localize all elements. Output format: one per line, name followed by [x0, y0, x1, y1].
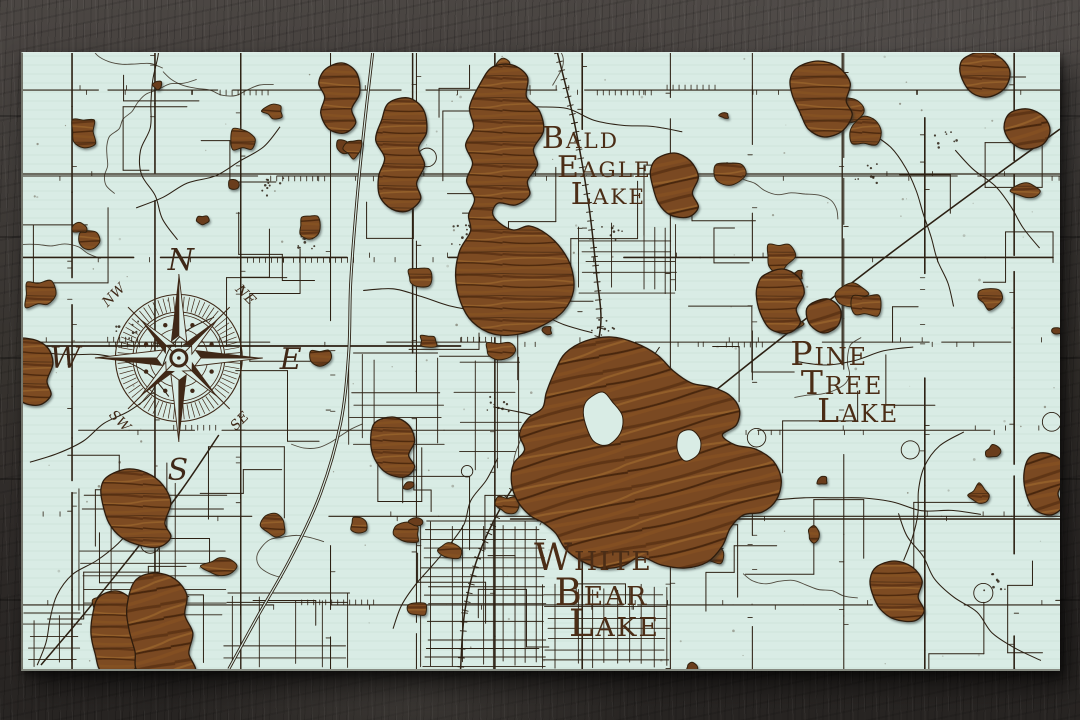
pond-shape: [152, 81, 161, 90]
compass-w-label: W: [50, 341, 83, 376]
framed-wood-map-photo: N E S W NE NW SE SW BALD EAGLE LAKE PINE…: [0, 0, 1080, 720]
compass-sw-label: SW: [106, 407, 135, 436]
pond-shape: [817, 476, 827, 484]
north-of-wbl-lake-shape: [650, 153, 698, 218]
pond-shape: [542, 327, 552, 335]
compass-e-label: E: [279, 342, 302, 377]
pond-shape: [808, 525, 819, 543]
pond-shape: [687, 662, 698, 669]
compass-n-label: N: [167, 243, 196, 278]
compass-nw-label: NW: [98, 280, 129, 311]
pond-shape: [200, 558, 237, 576]
pond-shape: [978, 289, 1003, 311]
pond-shape: [231, 128, 256, 150]
pond-shape: [260, 513, 285, 537]
pond-shape: [300, 216, 320, 240]
pond-shape: [408, 268, 432, 287]
pond-shape: [229, 179, 240, 189]
pond-shape: [968, 483, 990, 504]
pond-shape: [261, 104, 282, 119]
bottom-left-lake2-shape: [127, 573, 196, 669]
pond-shape: [486, 342, 516, 360]
pond-shape: [351, 517, 367, 533]
white-bear-lake-shape: [511, 337, 781, 568]
pond-shape: [343, 140, 362, 159]
pond-shape: [1052, 328, 1060, 334]
pond-shape: [403, 482, 414, 490]
pond-shape: [196, 216, 209, 225]
pond-shape: [420, 335, 437, 347]
compass-s-label: S: [168, 453, 189, 488]
left-edge-lake-shape: [23, 338, 53, 405]
pond-shape: [25, 280, 56, 308]
pond-shape: [851, 295, 881, 317]
pine-lake2-shape: [806, 299, 841, 333]
otter-lake-shape: [376, 98, 427, 212]
pond-shape: [985, 444, 1000, 457]
north-small-lake-shape: [319, 63, 360, 133]
map-canvas: N E S W NE NW SE SW BALD EAGLE LAKE PINE…: [23, 53, 1060, 669]
pond-shape: [79, 231, 100, 250]
pond-shape: [310, 350, 332, 366]
pond-shape: [714, 163, 746, 185]
pond-shape: [72, 119, 96, 148]
ne-lake1-shape: [790, 61, 852, 137]
engraved-map-panel: N E S W NE NW SE SW BALD EAGLE LAKE PINE…: [21, 52, 1060, 671]
compass-rose: N E S W NE NW SE SW: [50, 243, 302, 488]
pond-shape: [407, 603, 426, 616]
compass-ne-label: NE: [231, 281, 259, 309]
pine-lake1-shape: [756, 269, 804, 333]
pond-shape: [72, 222, 87, 232]
se-lake-shape: [870, 561, 924, 622]
pond-shape: [719, 113, 729, 119]
pond-shape: [437, 543, 461, 559]
mid-west-lake-shape: [371, 417, 415, 477]
